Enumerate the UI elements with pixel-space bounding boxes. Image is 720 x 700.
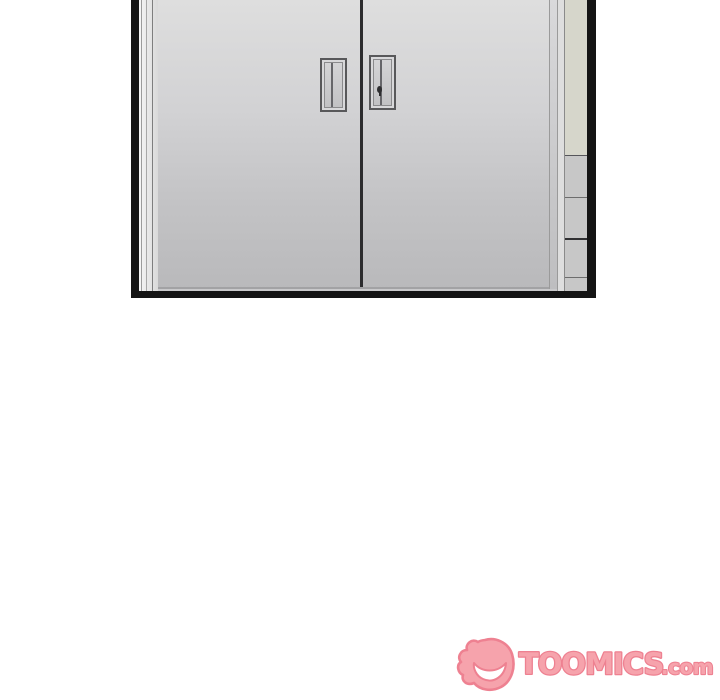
door-seam — [360, 0, 363, 289]
comic-panel — [131, 0, 596, 298]
hinge-line — [565, 238, 587, 240]
hinge-line — [565, 197, 587, 198]
toomics-watermark: TOOMICS .com — [455, 633, 720, 698]
handle-grip — [331, 63, 333, 107]
door-frame-right-strip — [550, 0, 557, 289]
comic-page: TOOMICS .com — [0, 0, 720, 700]
left-door-handle — [320, 58, 347, 112]
handle-grip — [380, 60, 382, 105]
side-column-upper-section — [565, 0, 587, 156]
handle-recess — [324, 62, 343, 108]
frame-line — [141, 0, 142, 291]
door-frame-side-column — [565, 0, 587, 291]
handle-recess — [373, 59, 392, 106]
keyhole-icon — [377, 86, 382, 93]
right-door — [363, 0, 549, 289]
toomics-logo-icon — [458, 639, 513, 690]
toomics-logo-tld: .com — [661, 655, 713, 679]
right-door-handle — [369, 55, 396, 110]
hinge-line — [565, 277, 587, 278]
door-frame-left — [139, 0, 158, 291]
panel-artwork — [139, 0, 587, 291]
toomics-logo-text: TOOMICS — [519, 647, 663, 681]
door-bottom-edge — [158, 287, 549, 289]
frame-line — [146, 0, 147, 291]
left-door — [158, 0, 360, 289]
frame-line — [152, 0, 153, 291]
